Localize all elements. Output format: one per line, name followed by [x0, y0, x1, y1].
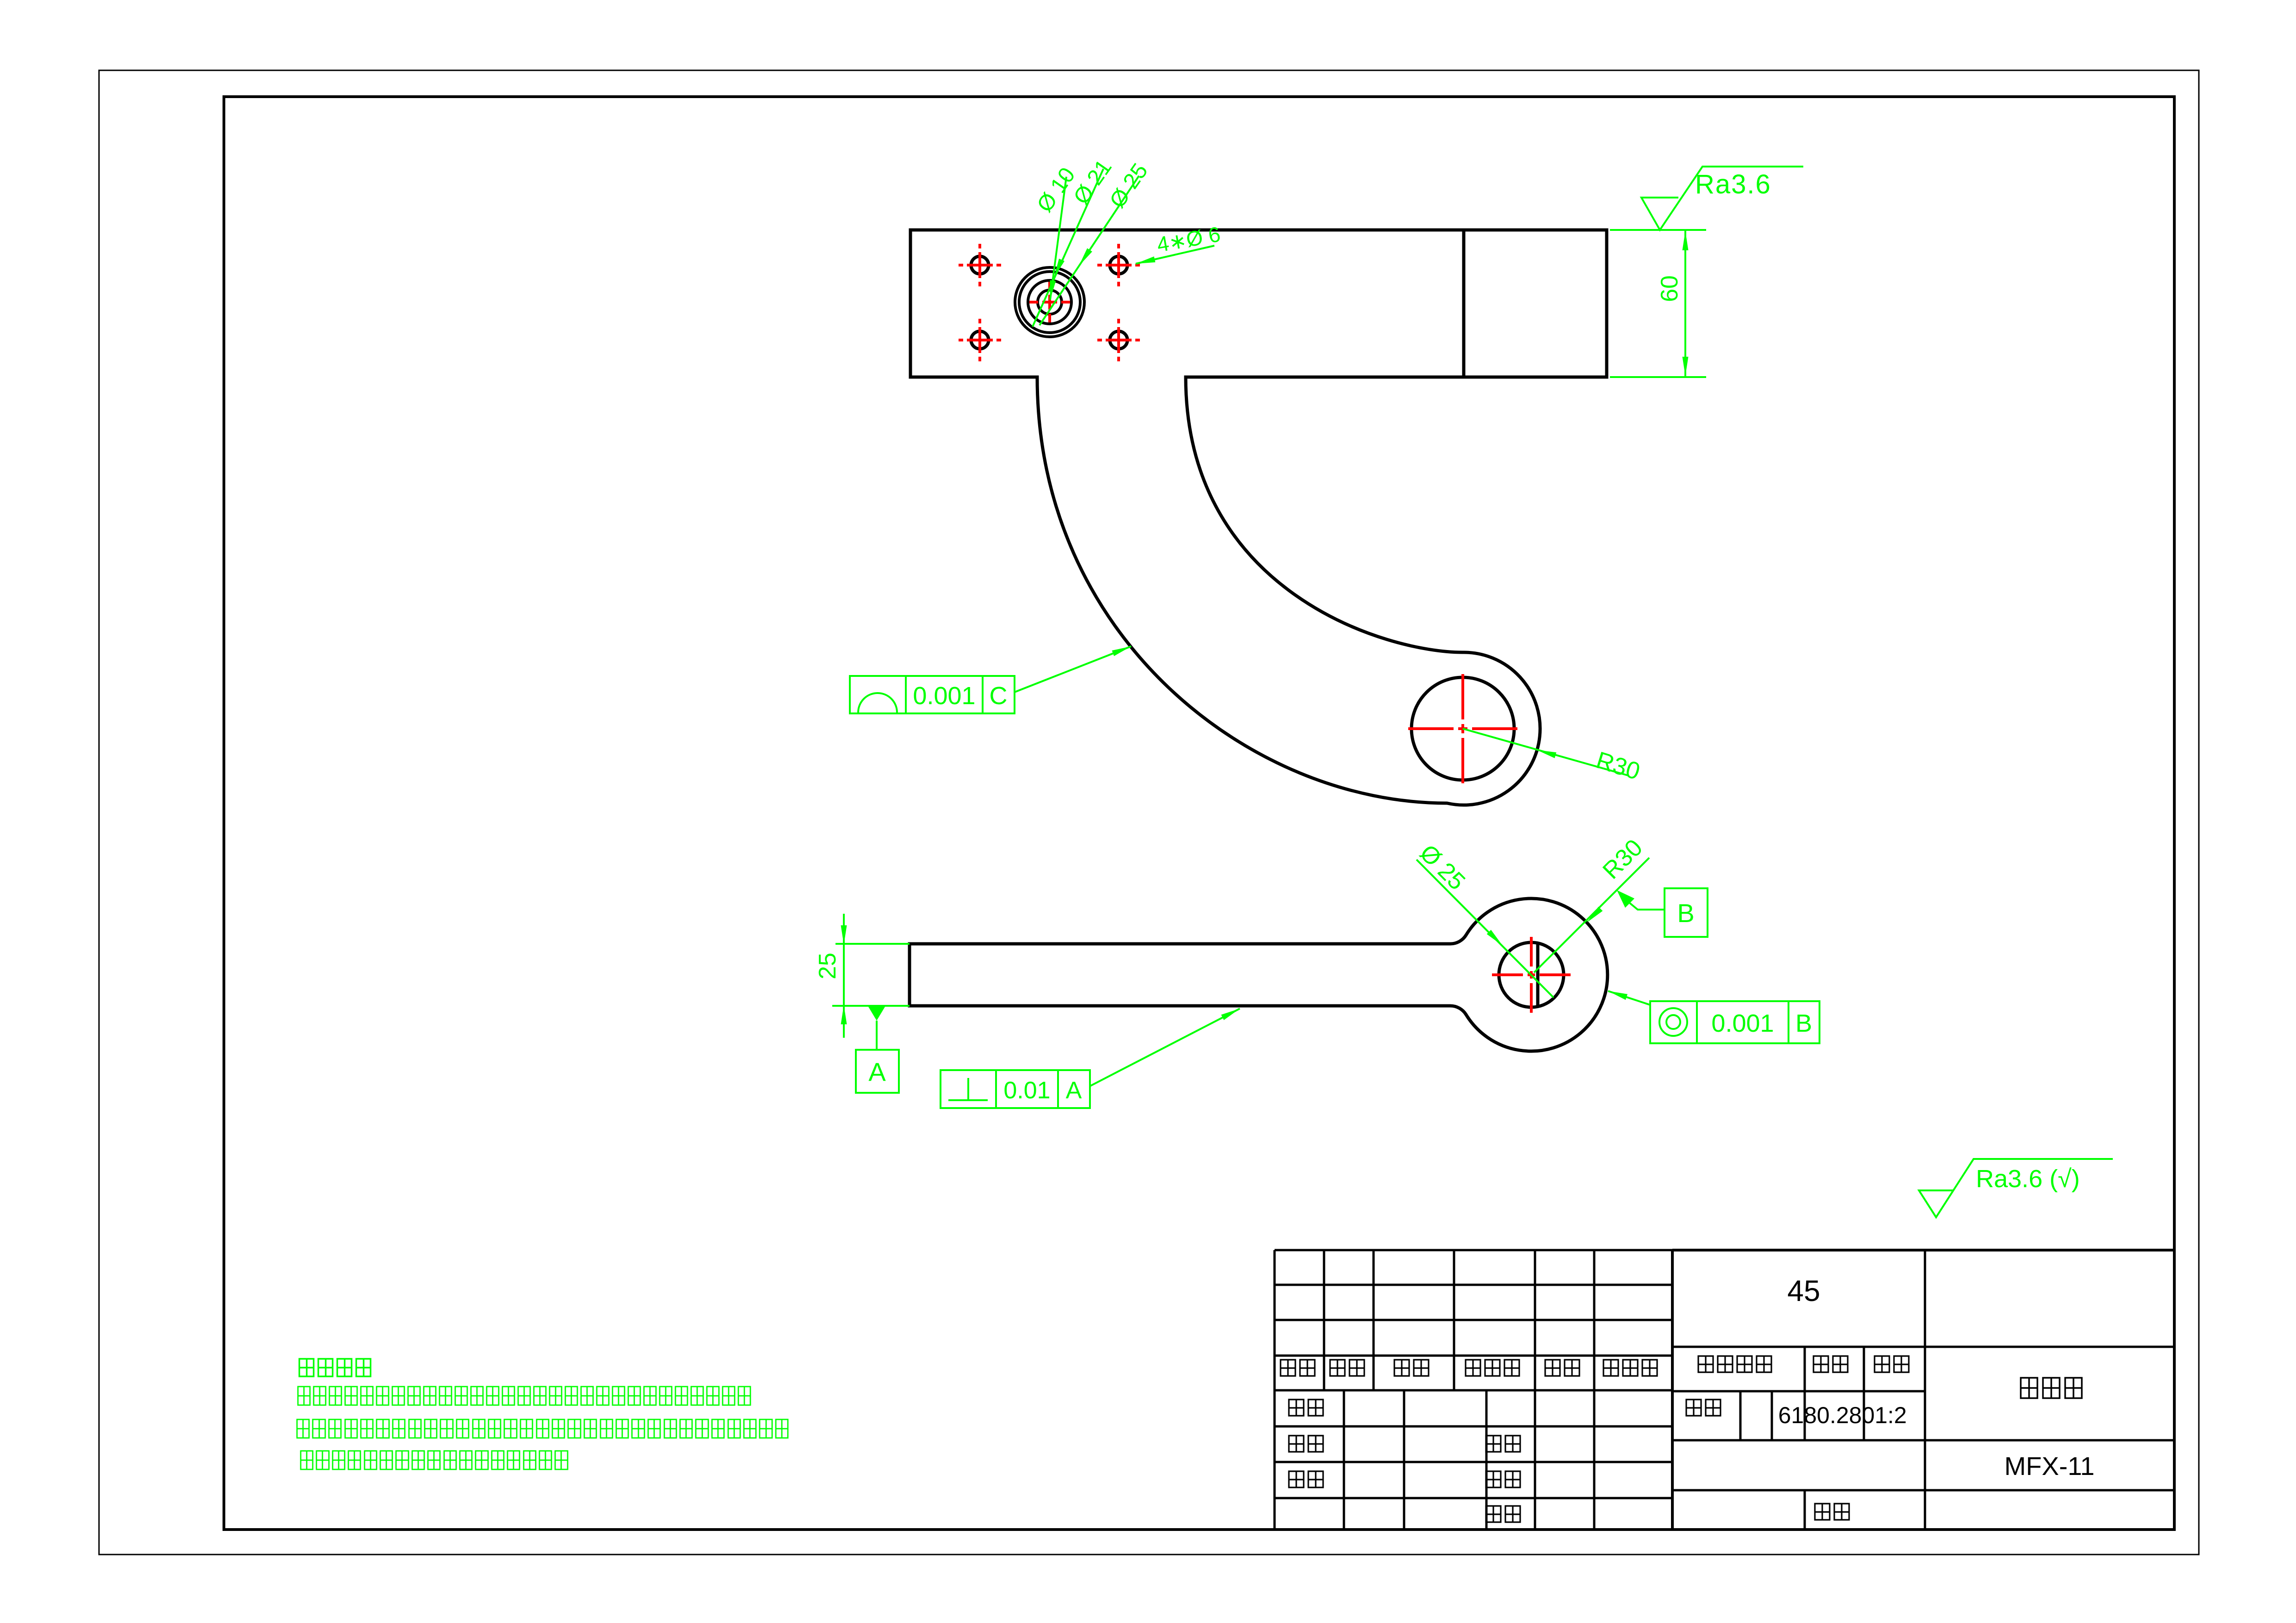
svg-text:1:2: 1:2 [1875, 1402, 1907, 1428]
svg-text:0.001: 0.001 [1711, 1010, 1774, 1037]
svg-text:MFX-11: MFX-11 [2005, 1451, 2095, 1481]
svg-text:25: 25 [814, 953, 841, 979]
svg-text:0.001: 0.001 [913, 682, 975, 710]
svg-text:45: 45 [1787, 1274, 1820, 1307]
svg-text:6180.280: 6180.280 [1778, 1402, 1875, 1428]
svg-text:A: A [868, 1057, 886, 1086]
svg-text:Ra3.6 (√): Ra3.6 (√) [1976, 1165, 2080, 1193]
svg-text:B: B [1795, 1010, 1812, 1037]
svg-text:Ra3.6: Ra3.6 [1695, 169, 1771, 199]
svg-text:60: 60 [1656, 275, 1683, 302]
svg-text:A: A [1066, 1077, 1082, 1104]
svg-text:B: B [1677, 898, 1694, 928]
svg-text:0.01: 0.01 [1003, 1077, 1050, 1104]
svg-text:C: C [990, 682, 1008, 710]
